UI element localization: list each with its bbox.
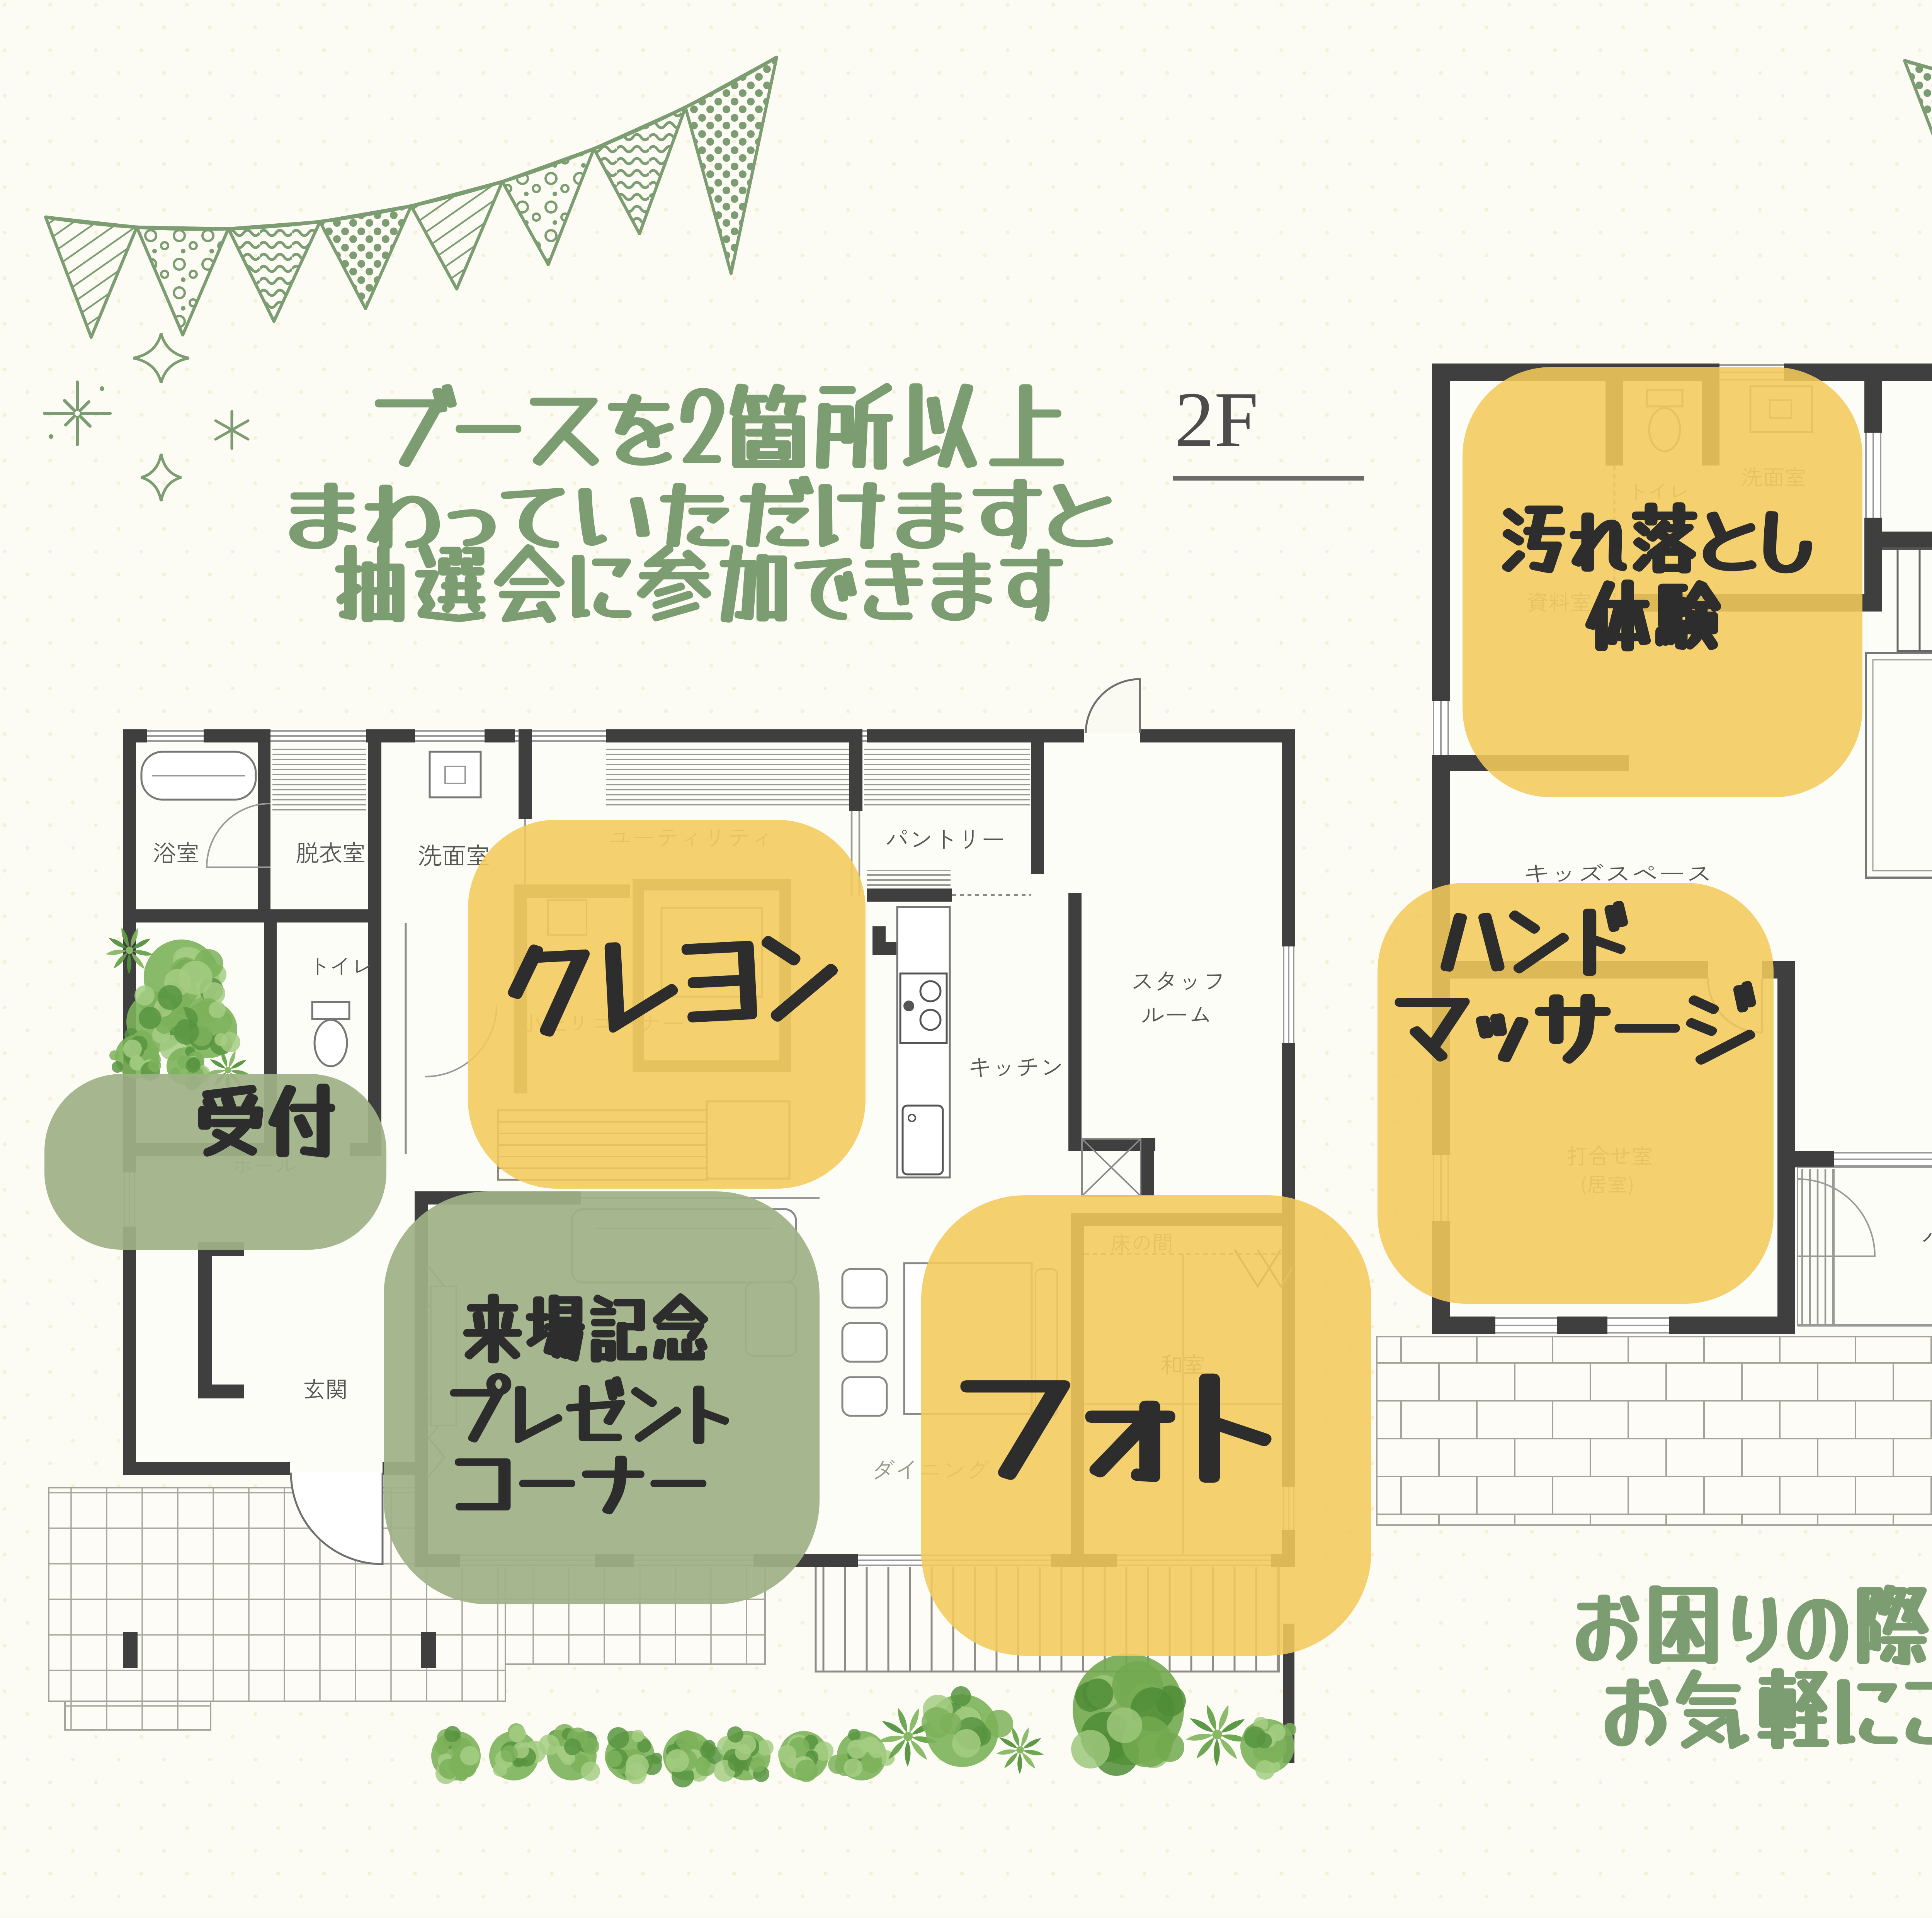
svg-text:2F: 2F (1175, 376, 1259, 464)
